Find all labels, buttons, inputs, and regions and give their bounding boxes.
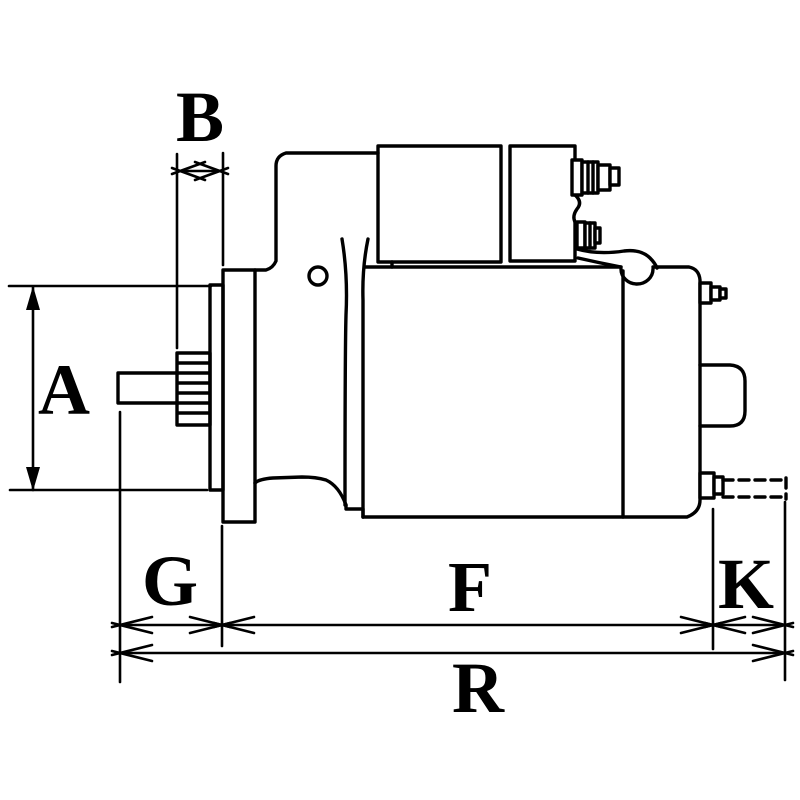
solenoid-rear-housing xyxy=(510,146,575,261)
housing-hole xyxy=(309,267,327,285)
dim-a-arrowhead-up xyxy=(26,286,40,310)
dim-label-a: A xyxy=(38,350,90,430)
endcap-upper-bolt-tip xyxy=(720,289,726,298)
battery-terminal-stud-tip xyxy=(610,168,619,185)
battery-terminal-washers xyxy=(582,162,598,193)
pilot-plate xyxy=(210,285,223,490)
housing-inner-curve-left xyxy=(342,239,347,505)
drive-housing-neck xyxy=(255,153,378,270)
dim-a-arrowhead-down xyxy=(26,467,40,491)
bearing-boss xyxy=(700,365,745,426)
terminals-group xyxy=(572,160,726,498)
motor-outline-group xyxy=(118,146,786,522)
dim-label-f: F xyxy=(448,547,492,627)
field-terminal-stud-tip xyxy=(595,228,600,243)
dim-label-k: K xyxy=(718,544,774,624)
hidden-stud-dashed xyxy=(723,478,786,499)
body-bottom-step xyxy=(346,505,363,517)
dimension-lines-group xyxy=(9,153,793,682)
pinion-gear xyxy=(177,353,210,425)
dim-label-r: R xyxy=(452,648,505,728)
housing-inner-curve-right xyxy=(363,239,368,517)
mounting-flange xyxy=(223,270,255,522)
endcap-lower-bolt-base xyxy=(700,473,714,498)
starter-motor-technical-drawing: A B G F K R xyxy=(0,0,800,800)
drive-shaft xyxy=(118,373,177,403)
battery-terminal-nut xyxy=(598,165,610,190)
solenoid-front-housing xyxy=(378,146,501,262)
dim-label-b: B xyxy=(176,77,224,157)
dim-label-g: G xyxy=(142,541,198,621)
motor-body-outline xyxy=(363,267,700,517)
drive-housing-bottom-curve xyxy=(255,477,346,505)
